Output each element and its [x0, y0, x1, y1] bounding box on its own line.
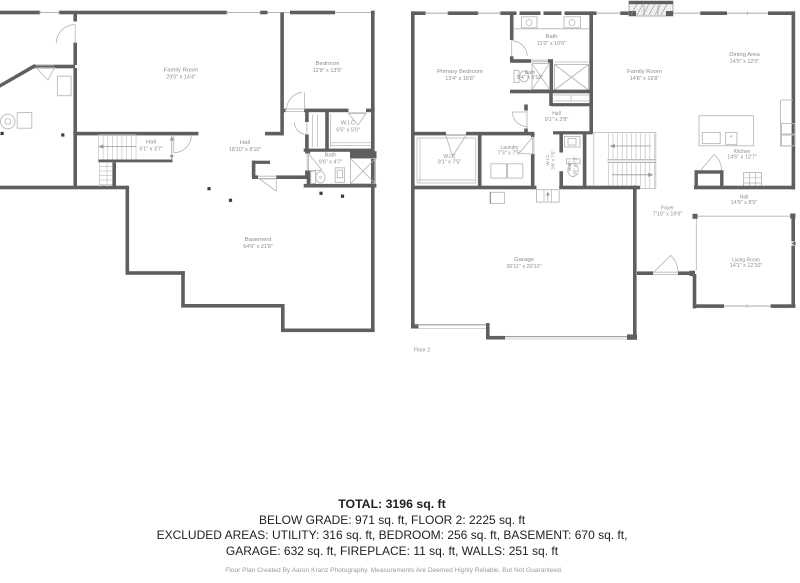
- svg-text:7'10" x 19'9": 7'10" x 19'9": [653, 211, 683, 217]
- svg-text:9'1" x 3'8": 9'1" x 3'8": [545, 117, 569, 123]
- svg-text:W.I.C: W.I.C: [545, 154, 550, 166]
- svg-text:Floor 2: Floor 2: [414, 348, 430, 354]
- svg-text:Bedroom: Bedroom: [316, 61, 340, 67]
- svg-text:18'10" x 8'10": 18'10" x 8'10": [229, 147, 262, 153]
- svg-text:30'11" x 20'10": 30'11" x 20'10": [506, 264, 541, 270]
- svg-text:Family Room: Family Room: [164, 68, 199, 74]
- svg-text:Primary Bedroom: Primary Bedroom: [437, 69, 483, 75]
- svg-text:3'0" x 7'5": 3'0" x 7'5": [573, 156, 578, 176]
- svg-text:12'8" x 13'5": 12'8" x 13'5": [313, 68, 343, 74]
- svg-text:9'6" x 4'7": 9'6" x 4'7": [319, 159, 343, 165]
- svg-text:Family Room: Family Room: [627, 69, 662, 75]
- svg-text:W.I.C: W.I.C: [341, 121, 356, 127]
- svg-text:14'5" x 12'7": 14'5" x 12'7": [727, 155, 757, 161]
- svg-text:14'5" x 12'0": 14'5" x 12'0": [730, 59, 760, 65]
- svg-text:Dining Area: Dining Area: [729, 52, 760, 58]
- svg-text:6'5" x 5'0": 6'5" x 5'0": [336, 128, 360, 134]
- svg-text:Bath: Bath: [324, 152, 336, 158]
- svg-text:Basement: Basement: [245, 237, 272, 243]
- svg-text:5'1" x 3'7": 5'1" x 3'7": [139, 147, 163, 153]
- svg-text:14'1" x 12'10": 14'1" x 12'10": [730, 263, 763, 269]
- svg-text:64'6" x 21'8": 64'6" x 21'8": [243, 244, 273, 250]
- svg-text:29'0" x 14'4": 29'0" x 14'4": [166, 75, 196, 81]
- svg-text:3'8" x 7'5": 3'8" x 7'5": [551, 150, 556, 170]
- svg-text:Garage: Garage: [514, 257, 534, 263]
- svg-text:Bath: Bath: [567, 161, 572, 171]
- svg-text:7'3" x 7'5": 7'3" x 7'5": [498, 151, 522, 157]
- svg-text:11'0" x 10'6": 11'0" x 10'6": [537, 41, 566, 47]
- svg-text:Hall: Hall: [146, 140, 156, 146]
- svg-text:9'1" x 7'5": 9'1" x 7'5": [438, 160, 462, 166]
- svg-text:13'4" x 16'8": 13'4" x 16'8": [445, 76, 475, 82]
- svg-text:14'8" x 16'8": 14'8" x 16'8": [630, 76, 660, 82]
- svg-text:Bath: Bath: [545, 34, 557, 40]
- svg-text:Hall: Hall: [240, 140, 250, 146]
- svg-text:14'9" x 8'5": 14'9" x 8'5": [731, 200, 758, 206]
- svg-text:5'4" x 9'10": 5'4" x 9'10": [517, 75, 544, 81]
